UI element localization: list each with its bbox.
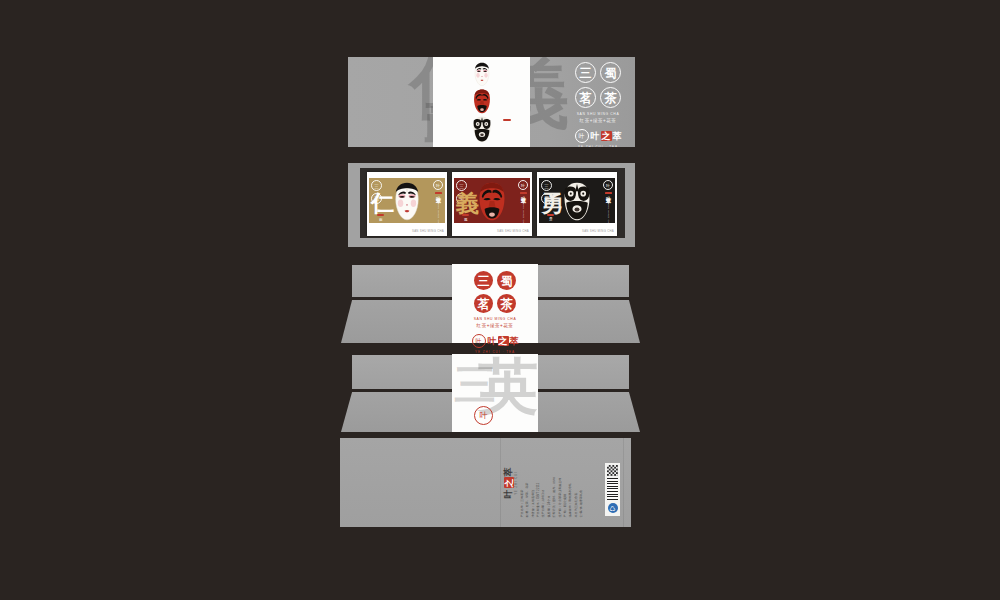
cards-tray-panel: 三 蜀 仁 仁茶 叶 叶之萃 SAN SHU MING CHA SAN SHU …: [348, 163, 635, 247]
logo-sub-vertical: SAN SHU MING CHA: [607, 196, 610, 224]
brand-seal-grid: 三 蜀 茗 茶: [474, 271, 516, 313]
seal-char: 蜀: [497, 271, 516, 290]
brand-tagline: 红茶+绿茶+花茶: [580, 118, 617, 123]
card-yong-art: 三 蜀 勇 勇茶 叶 叶之萃 SAN SHU MING CHA: [539, 178, 615, 223]
logo-char-stamp: 之: [504, 478, 514, 489]
info-line: 产品标准号：GB/T 22111: [536, 455, 540, 518]
packaging-design-board: 仁 義 勇 三结义 三 蜀 茗 茶 SAN SHU MING CHA 红茶+绿茶…: [0, 0, 1000, 600]
lid-white-strip: 三 英 叶: [452, 354, 538, 432]
dieline: [500, 438, 501, 527]
sleeve-red-tag: 三结义: [503, 119, 511, 121]
seal-char: 三: [575, 62, 596, 83]
info-line: 温馨提示：请用沸水冲泡: [568, 455, 572, 518]
barcode-icon: [607, 478, 618, 500]
code-strip: ♺: [605, 463, 620, 516]
card-yong: 三 蜀 勇 勇茶 叶 叶之萃 SAN SHU MING CHA SAN SHU …: [537, 172, 617, 236]
brand-block-sleeve: 三 蜀 茗 茶 SAN SHU MING CHA 红茶+绿茶+花茶 叶 叶 之 …: [566, 62, 630, 147]
logo-subtitle: YE ZHI CUI · TEA: [475, 350, 515, 354]
info-line: 保质期：24个月: [546, 455, 550, 518]
logo-char-stamp: 之: [601, 131, 612, 141]
back-logo: 叶 之 萃 YE ZHI CUI: [502, 458, 520, 508]
cards-tray-inset: 三 蜀 仁 仁茶 叶 叶之萃 SAN SHU MING CHA SAN SHU …: [360, 168, 625, 238]
leaf-seal-icon: 叶: [433, 180, 443, 190]
brand-pinyin: SAN SHU MING CHA: [474, 317, 517, 321]
logo-name-vertical: 叶之萃: [606, 192, 611, 195]
sleeve-panel: 仁 義 勇 三结义 三 蜀 茗 茶 SAN SHU MING CHA 红茶+绿茶…: [348, 57, 635, 147]
card-logo: 叶 叶之萃 SAN SHU MING CHA: [518, 180, 528, 223]
leaf-seal-icon: 叶: [472, 334, 486, 348]
seal-char: 茶: [600, 87, 621, 108]
leaf-seal-icon: 叶: [518, 180, 528, 190]
card-footer: SAN SHU MING CHA: [369, 226, 444, 235]
logo-sub-vertical: SAN SHU MING CHA: [437, 196, 440, 224]
logo-char: 萃: [613, 132, 622, 141]
virtue-stamp: 義茶: [462, 214, 469, 216]
lid-panel-branded: 三 蜀 茗 茶 SAN SHU MING CHA 红茶+绿茶+花茶 叶 叶 之 …: [341, 264, 640, 343]
back-info-text: 产品名称：三蜀茗茶 配 料：红茶、绿茶、花茶 净含量：见包装标注 产品标准号：G…: [520, 455, 600, 518]
sleeve-white-strip: 三结义: [433, 57, 530, 147]
logo-char: 萃: [510, 337, 519, 346]
card-ren: 三 蜀 仁 仁茶 叶 叶之萃 SAN SHU MING CHA SAN SHU …: [367, 172, 447, 236]
logo-name-vertical: 叶之萃: [521, 192, 526, 195]
logo-name: 叶 之 萃: [591, 131, 622, 141]
card-ren-art: 三 蜀 仁 仁茶 叶 叶之萃 SAN SHU MING CHA: [369, 178, 445, 223]
brand-logo: 叶 叶 之 萃: [472, 334, 519, 348]
logo-name: 叶 之 萃: [488, 336, 519, 346]
red-seal-icon: 叶: [474, 406, 493, 425]
recycle-icon: ♺: [608, 503, 618, 513]
opera-mask-red-icon: [467, 88, 497, 114]
info-line: 产 地：四川·成都: [562, 455, 566, 518]
virtue-stamp: 仁茶: [377, 214, 384, 216]
logo-char: 叶: [488, 337, 497, 346]
info-line: 产品名称：三蜀茗茶: [520, 455, 524, 518]
lid-panel-watermark: 三 英 叶: [341, 354, 640, 432]
opera-mask-white-icon: [469, 61, 495, 87]
base-panel: 叶 之 萃 YE ZHI CUI 产品名称：三蜀茗茶 配 料：红茶、绿茶、花茶 …: [340, 438, 631, 527]
info-line: 仁·義·勇 脸谱茶礼盒: [578, 455, 582, 518]
card-footer: SAN SHU MING CHA: [454, 226, 529, 235]
opera-mask-black-icon: [467, 115, 497, 143]
lid-white-strip: 三 蜀 茗 茶 SAN SHU MING CHA 红茶+绿茶+花茶 叶 叶 之 …: [452, 264, 538, 343]
dieline: [623, 438, 624, 527]
brand-logo: 叶 叶 之 萃: [575, 129, 622, 143]
card-yi-art: 三 蜀 義 義茶 叶 叶之萃 SAN SHU MING CHA: [454, 178, 530, 223]
info-line: 净含量：见包装标注: [530, 455, 534, 518]
seal-char: 三: [474, 271, 493, 290]
card-logo: 叶 叶之萃 SAN SHU MING CHA: [603, 180, 613, 223]
seal-char: 茗: [575, 87, 596, 108]
card-yi: 三 蜀 義 義茶 叶 叶之萃 SAN SHU MING CHA SAN SHU …: [452, 172, 532, 236]
brand-pinyin: SAN SHU MING CHA: [577, 112, 620, 116]
logo-char-stamp: 之: [498, 336, 509, 346]
logo-char: 叶: [504, 490, 514, 499]
info-line: 配 料：红茶、绿茶、花茶: [525, 455, 529, 518]
brand-tagline: 红茶+绿茶+花茶: [477, 323, 514, 328]
brand-seal-grid: 三 蜀 茗 茶: [575, 62, 621, 108]
seal-char: 茶: [497, 294, 516, 313]
virtue-calligraphy: 義: [456, 191, 479, 214]
info-line: 贮存方法：密封、避光、防潮: [552, 455, 556, 518]
info-line: 生产日期：见封口处: [541, 455, 545, 518]
virtue-calligraphy: 仁: [371, 191, 394, 214]
watermark-char: 三: [454, 364, 496, 406]
opera-mask-black-icon: [560, 180, 594, 222]
leaf-seal-icon: 叶: [603, 180, 613, 190]
leaf-seal-icon: 叶: [575, 129, 589, 143]
seal-char: 蜀: [600, 62, 621, 83]
opera-mask-white-icon: [390, 180, 424, 222]
logo-name: 叶 之 萃: [504, 468, 514, 499]
logo-char: 萃: [504, 468, 514, 477]
info-line: 生产商：叶之萃茶业有限公司: [557, 455, 561, 518]
virtue-calligraphy: 勇: [541, 191, 564, 214]
logo-name-vertical: 叶之萃: [436, 192, 441, 195]
logo-char: 叶: [591, 132, 600, 141]
card-logo: 叶 叶之萃 SAN SHU MING CHA: [433, 180, 443, 223]
virtue-stamp: 勇茶: [547, 214, 554, 216]
info-line: 本品为三款组合装: [573, 455, 577, 518]
qr-code-icon: [607, 465, 618, 476]
opera-mask-red-icon: [475, 180, 509, 222]
seal-char: 茗: [474, 294, 493, 313]
logo-sub-vertical: SAN SHU MING CHA: [522, 196, 525, 224]
card-footer: SAN SHU MING CHA: [539, 226, 614, 235]
logo-subtitle: YE ZHI CUI · TEA: [578, 145, 618, 148]
logo-subtitle: YE ZHI CUI: [515, 471, 518, 495]
brand-block-lid: 三 蜀 茗 茶 SAN SHU MING CHA 红茶+绿茶+花茶 叶 叶 之 …: [452, 271, 538, 354]
